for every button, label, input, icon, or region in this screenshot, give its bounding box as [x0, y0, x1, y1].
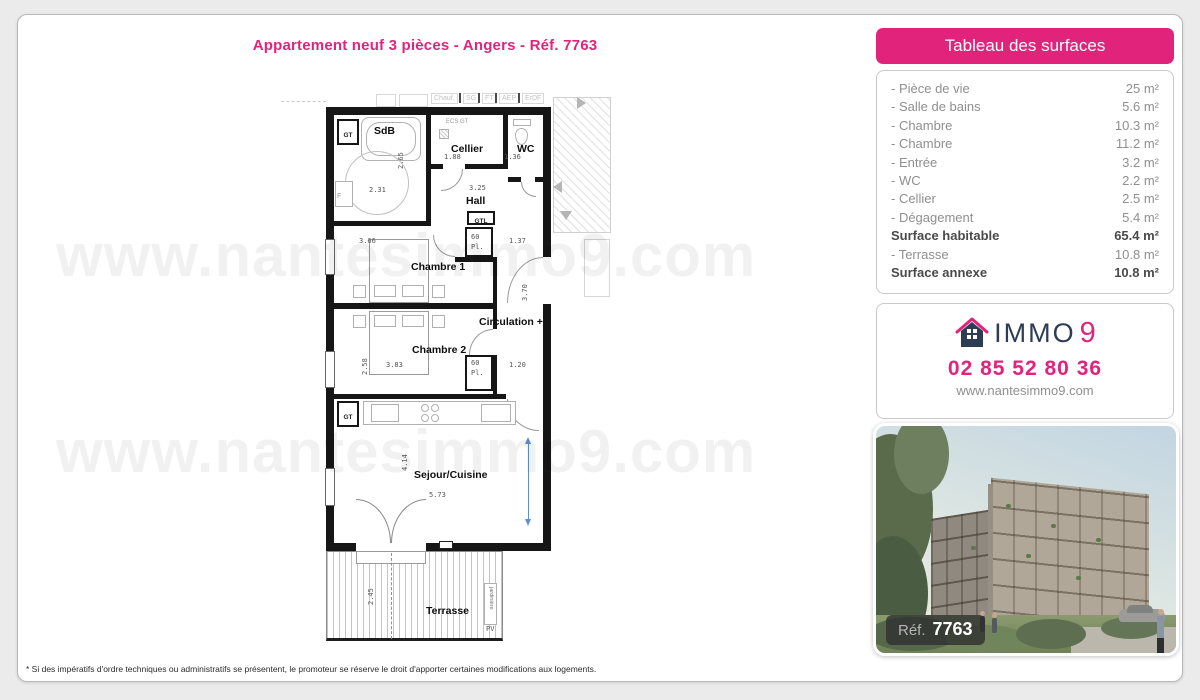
wall: [334, 303, 497, 309]
window: [325, 239, 335, 275]
wall: [334, 394, 506, 399]
wall: [493, 355, 497, 394]
window: [325, 468, 335, 506]
wall: [326, 543, 356, 551]
pillow: [374, 285, 396, 297]
hob-burner: [431, 414, 439, 422]
table-row-total: Surface habitable65.4 m²: [891, 227, 1159, 245]
nightstand: [353, 285, 366, 298]
legal-disclaimer: * Si des impératifs d'ordre techniques o…: [26, 664, 746, 674]
brand-immo: IMMO: [994, 318, 1076, 349]
tree: [894, 423, 949, 494]
table-row: - Salle de bains5.6 m²: [891, 98, 1159, 116]
dim: Pl.: [471, 243, 484, 251]
wall-tick: [478, 93, 480, 103]
table-row-total: Surface annexe10.8 m²: [891, 264, 1159, 282]
nightstand: [432, 285, 445, 298]
dim: 2.45: [367, 588, 375, 605]
pillow: [374, 315, 396, 327]
neighbor-line: [281, 101, 326, 102]
dim: 4.14: [401, 454, 409, 471]
pillow: [402, 315, 424, 327]
gt-box: GT: [337, 119, 359, 145]
room-label-terrasse: Terrasse: [426, 605, 469, 617]
vent-box: [439, 541, 453, 549]
utility-box: [376, 94, 396, 107]
brand-nine: 9: [1080, 317, 1096, 350]
person-head: [992, 613, 997, 618]
blue-dimension-line: [528, 441, 529, 521]
utility-label-sg: SG: [463, 93, 479, 104]
reference-label: Réf.: [898, 622, 926, 639]
dim: 3.25: [469, 184, 486, 192]
wall: [326, 107, 551, 115]
surfaces-table-header: Tableau des surfaces: [876, 28, 1174, 64]
person: [992, 618, 997, 633]
planter-label: jardinière: [488, 587, 494, 610]
french-door-arc: [391, 499, 426, 543]
surfaces-table-title: Tableau des surfaces: [945, 36, 1106, 56]
dim: 1.88: [444, 153, 461, 161]
table-row: - Chambre10.3 m²: [891, 117, 1159, 135]
phone-number[interactable]: 02 85 52 80 36: [877, 357, 1173, 381]
table-row: - Terrasse10.8 m²: [891, 246, 1159, 264]
direction-arrow-icon: [560, 211, 572, 220]
dim: 3.66: [359, 237, 376, 245]
website-link[interactable]: www.nantesimmo9.com: [877, 383, 1173, 398]
car-roof: [1127, 605, 1153, 613]
room-label-chambre2: Chambre 2: [412, 344, 466, 356]
dim: 2.31: [369, 186, 386, 194]
dim: 3.70: [521, 284, 529, 301]
dim: 60: [471, 233, 479, 241]
toilet-tank: [513, 119, 531, 126]
utility-label-erdf: ErDF: [522, 93, 544, 104]
utility-box: [399, 94, 428, 107]
table-row: - WC2.2 m²: [891, 172, 1159, 190]
building-photo[interactable]: Réf. 7763: [873, 423, 1179, 656]
door-arc: [433, 235, 455, 257]
immo9-logo: IMMO9: [877, 316, 1173, 350]
wall: [465, 164, 508, 169]
floor-plan: Chauf. SG FT AEP ErDF: [281, 89, 611, 655]
room-label-sdb: SdB: [374, 125, 395, 137]
hob-burner: [431, 404, 439, 412]
wall: [326, 388, 334, 468]
dim: Pl.: [471, 369, 484, 377]
direction-arrow-icon: [577, 97, 586, 109]
person-head: [1158, 609, 1164, 615]
trap-hatch: [439, 129, 449, 139]
wall: [326, 107, 334, 239]
room-label-circulation: Circulation +: [479, 316, 543, 328]
door-arc: [441, 169, 463, 191]
page-title: Appartement neuf 3 pièces - Angers - Réf…: [198, 37, 652, 54]
nightstand: [432, 315, 445, 328]
window: [325, 351, 335, 388]
room-label-sejour: Sejour/Cuisine: [414, 469, 488, 481]
dim: 3.83: [386, 361, 403, 369]
door-arc: [469, 329, 493, 355]
room-label-hall: Hall: [466, 195, 485, 207]
kitchen-sink: [371, 404, 399, 422]
table-row: - Entrée3.2 m²: [891, 154, 1159, 172]
hob-burner: [421, 414, 429, 422]
dim: 1.37: [509, 237, 526, 245]
dim: 60: [471, 359, 479, 367]
pillow: [402, 285, 424, 297]
dim: 1.36: [504, 153, 521, 161]
bush: [1016, 619, 1086, 649]
table-row: - Pièce de vie25 m²: [891, 80, 1159, 98]
contact-card: IMMO9 02 85 52 80 36 www.nantesimmo9.com: [876, 303, 1174, 419]
placard-ch1: [465, 227, 493, 257]
utility-label-chauf: Chauf.: [431, 93, 458, 104]
wall: [535, 177, 543, 182]
wall: [508, 177, 521, 182]
wall: [334, 221, 431, 226]
ecs-gt-label: ECS GT: [446, 119, 468, 125]
dim: 5.73: [429, 491, 446, 499]
surfaces-table: - Pièce de vie25 m² - Salle de bains5.6 …: [876, 70, 1174, 294]
dim: 1.20: [509, 361, 526, 369]
person-legs: [1157, 638, 1164, 654]
wall: [543, 304, 551, 551]
dim: 2.65: [397, 152, 405, 169]
table-row: - Dégagement5.4 m²: [891, 209, 1159, 227]
immo9-house-icon: [954, 316, 990, 350]
wall-tick: [495, 93, 497, 103]
window-label: F: [337, 193, 341, 200]
nightstand: [353, 315, 366, 328]
person: [1157, 616, 1164, 640]
wall: [326, 275, 334, 351]
door-arc: [521, 182, 536, 197]
reference-number: 7763: [933, 619, 973, 640]
gtl-box: GTL: [467, 211, 495, 225]
table-row: - Chambre11.2 m²: [891, 135, 1159, 153]
utility-label-aep: AEP: [499, 93, 519, 104]
gt-box: GT: [337, 401, 359, 427]
terrace-axis: [391, 553, 392, 639]
french-door-arc: [356, 499, 391, 543]
direction-arrow-icon: [553, 181, 562, 193]
terrace-area: [326, 551, 503, 641]
flyer-card: Appartement neuf 3 pièces - Angers - Réf…: [17, 14, 1183, 682]
kitchen-appliance: [481, 404, 511, 422]
wall-tick: [518, 93, 520, 103]
reference-badge: Réf. 7763: [886, 615, 985, 645]
pv-label: PV: [486, 625, 494, 633]
neighbor-outline: [584, 239, 610, 297]
room-label-chambre1: Chambre 1: [411, 261, 465, 273]
hob-burner: [421, 404, 429, 412]
dim: 2.58: [361, 358, 369, 375]
wall-tick: [459, 93, 461, 103]
table-row: - Cellier2.5 m²: [891, 190, 1159, 208]
wall: [543, 107, 551, 257]
